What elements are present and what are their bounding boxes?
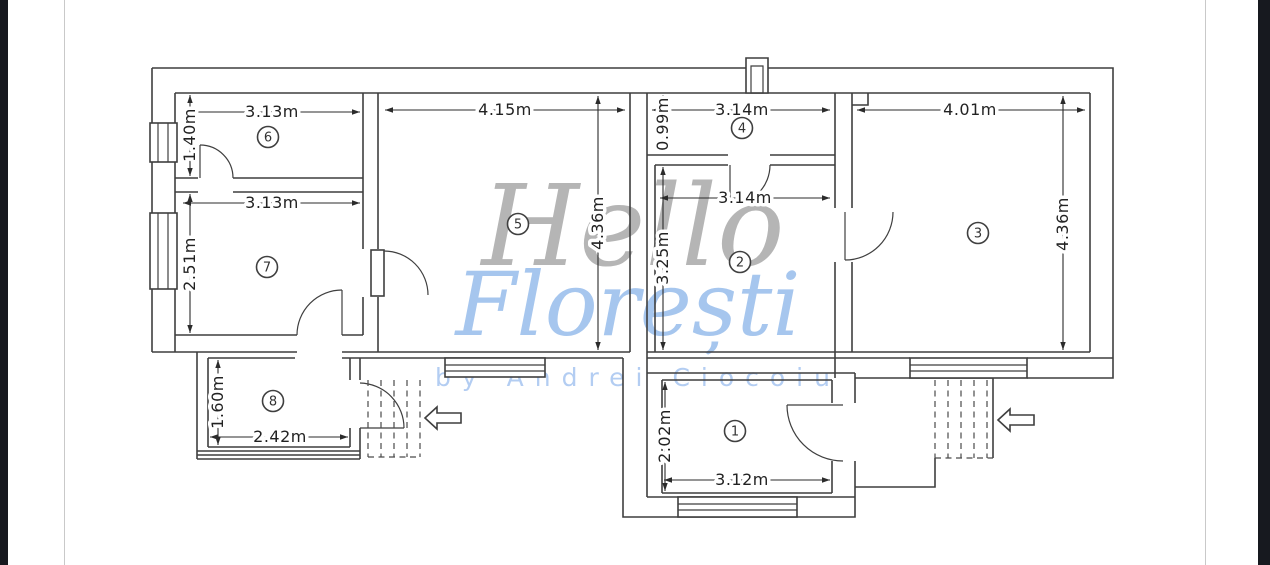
room-3-badge: 3: [968, 223, 989, 244]
dim-room8-height: 1.60m: [208, 375, 227, 429]
room-4-badge: 4: [732, 118, 753, 139]
door-room5: [371, 250, 428, 296]
dim-room6-width: 3.13m: [245, 102, 299, 121]
dim-room4-height: 0.99m: [653, 97, 672, 151]
room-8-number: 8: [269, 395, 277, 410]
entrance-arrow-right-icon: [998, 409, 1034, 431]
window-room3: [910, 358, 1027, 378]
room-5-badge: 5: [508, 214, 529, 235]
room-1-badge: 1: [725, 421, 746, 442]
door-room1-entry: [787, 405, 843, 461]
room-2-number: 2: [736, 256, 744, 271]
floor-plan-page: Hello Florești by Andrei Ciocoiu: [0, 0, 1270, 565]
dim-room8-width: 2.42m: [253, 427, 307, 446]
entrance-arrow-left-icon: [425, 407, 461, 429]
dim-room2-height: 3.25m: [653, 231, 672, 285]
dim-room1-width: 3.12m: [715, 470, 769, 489]
door-room2-room3: [845, 212, 893, 260]
door-room8-exit: [360, 383, 404, 428]
window-room6: [150, 123, 177, 162]
dim-room5-width: 4.15m: [478, 100, 532, 119]
dim-room3-height: 4.36m: [1053, 197, 1072, 251]
room-8-badge: 8: [263, 391, 284, 412]
window-room1: [678, 497, 797, 517]
dim-room4-width: 3.14m: [715, 100, 769, 119]
door-room7-room8: [297, 290, 342, 335]
dim-room5-height: 4.36m: [588, 196, 607, 250]
dim-room1-height: 2.02m: [655, 409, 674, 463]
room-3-number: 3: [974, 227, 982, 242]
window-room5: [445, 358, 545, 377]
room-5-number: 5: [514, 218, 522, 233]
stairs-right: [935, 380, 993, 458]
floor-plan-svg: Hello Florești by Andrei Ciocoiu: [0, 0, 1270, 565]
window-room7: [150, 213, 177, 289]
room-4-number: 4: [738, 122, 746, 137]
room-7-number: 7: [263, 261, 271, 276]
dim-room7-width: 3.13m: [245, 193, 299, 212]
dim-room2-width: 3.14m: [718, 188, 772, 207]
stairs-left: [368, 380, 420, 457]
dim-room6-height: 1.40m: [180, 108, 199, 162]
dim-room7-height: 2.51m: [180, 237, 199, 291]
door-room6: [200, 145, 233, 178]
room-6-badge: 6: [258, 127, 279, 148]
dim-room3-width: 4.01m: [943, 100, 997, 119]
room-1-number: 1: [731, 425, 739, 440]
room-7-badge: 7: [257, 257, 278, 278]
room-6-number: 6: [264, 131, 272, 146]
room-2-badge: 2: [730, 252, 751, 273]
